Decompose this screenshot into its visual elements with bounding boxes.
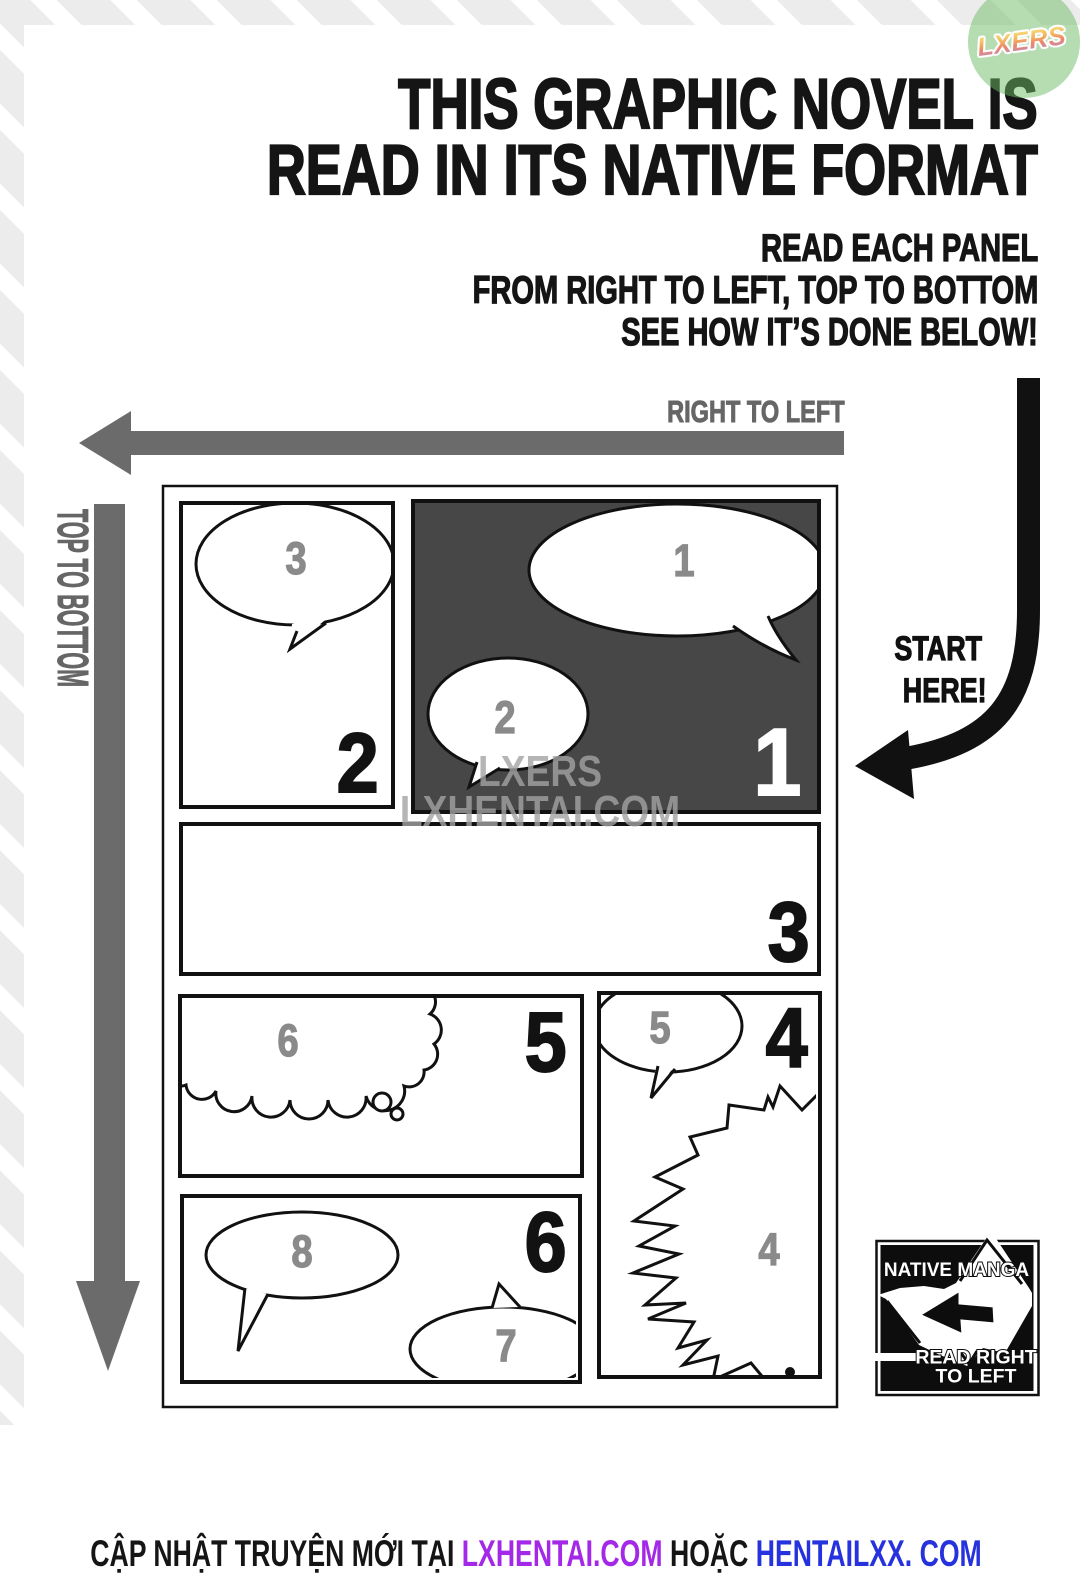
svg-text:TO LEFT: TO LEFT: [936, 1366, 1017, 1388]
svg-text:NATIVE MANGA: NATIVE MANGA: [884, 1260, 1030, 1281]
